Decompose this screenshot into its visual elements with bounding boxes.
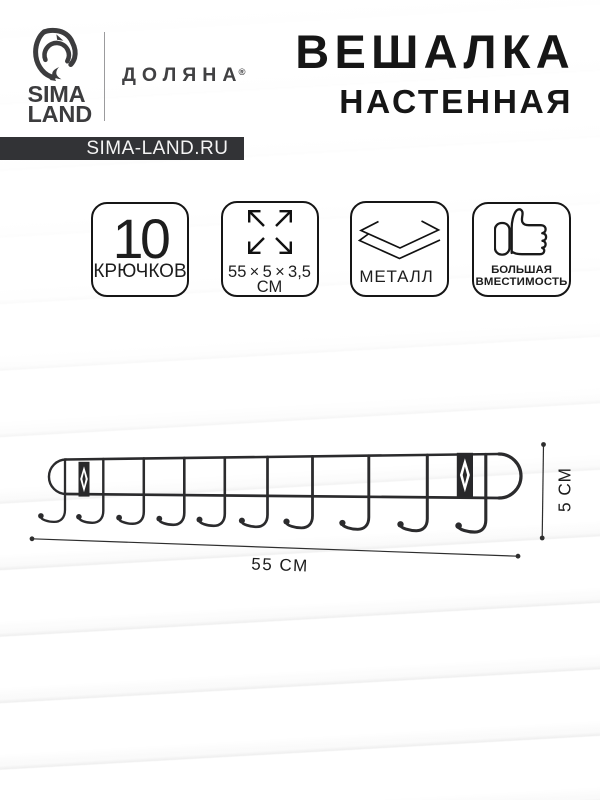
- svg-text:55 СМ: 55 СМ: [251, 555, 309, 576]
- svg-text:5 СМ: 5 СМ: [555, 467, 575, 512]
